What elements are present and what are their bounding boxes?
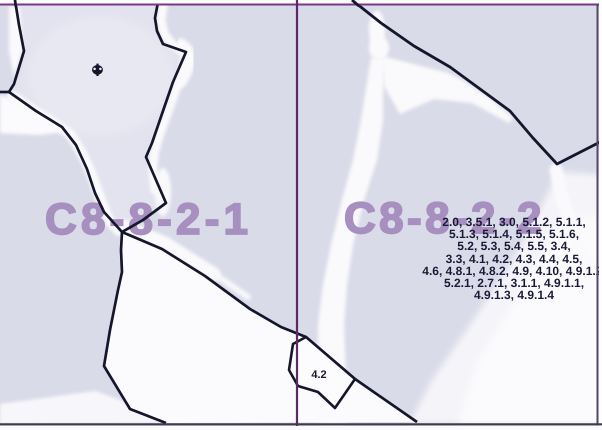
svg-text:4.9.1.3, 4.9.1.4: 4.9.1.3, 4.9.1.4 [474,288,554,302]
svg-text:5.2, 5.3, 5.4, 5.5, 3.4,: 5.2, 5.3, 5.4, 5.5, 3.4, [457,239,570,253]
svg-text:4.2: 4.2 [311,369,326,381]
svg-text:C8-8-2-1: C8-8-2-1 [45,195,252,244]
